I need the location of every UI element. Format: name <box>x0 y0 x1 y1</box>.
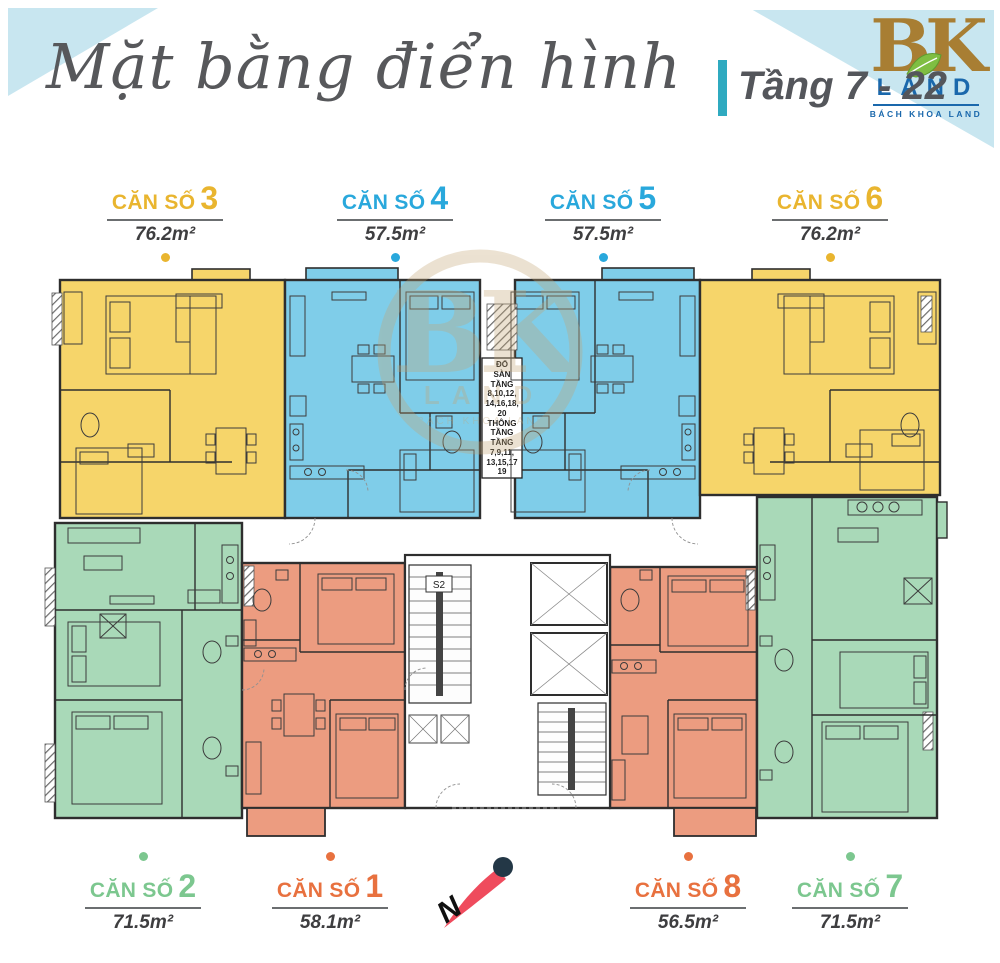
unit-area: 71.5m² <box>780 912 920 934</box>
compass-circle <box>493 857 513 877</box>
unit-name: CĂN SỐ <box>797 879 880 903</box>
unit-area: 57.5m² <box>325 224 465 246</box>
unit-color-dot <box>599 253 608 262</box>
unit-number: 4 <box>430 180 448 217</box>
unit-number: 6 <box>865 180 883 217</box>
floor-range-accent-bar <box>718 60 727 116</box>
unit-6-block <box>700 280 940 495</box>
unit-area: 76.2m² <box>760 224 900 246</box>
unit-name: CĂN SỐ <box>777 191 860 215</box>
unit-1-block <box>242 563 405 808</box>
unit-name: CĂN SỐ <box>112 191 195 215</box>
unit-area: 56.5m² <box>618 912 758 934</box>
logo-tagline: BÁCH KHOA LAND <box>858 109 994 119</box>
unit-label-5: CĂN SỐ5 57.5m² <box>533 180 673 262</box>
label-underline <box>772 219 888 221</box>
unit-color-dot <box>139 852 148 861</box>
unit-3-block <box>60 280 285 518</box>
watermark-tagline: BACH KHOA LAND <box>417 416 547 427</box>
unit-name: CĂN SỐ <box>90 879 173 903</box>
unit-label-3: CĂN SỐ3 76.2m² <box>95 180 235 262</box>
watermark-word: LAND <box>424 380 544 410</box>
unit-8-block <box>610 567 757 808</box>
label-underline <box>545 219 661 221</box>
label-underline <box>107 219 223 221</box>
unit-name: CĂN SỐ <box>277 879 360 903</box>
unit-number: 3 <box>200 180 218 217</box>
compass-north: N <box>431 857 513 930</box>
core-block: S2 <box>405 555 610 808</box>
label-underline <box>337 219 453 221</box>
floor-plan-page: Mặt bằng điển hình Tầng 7 - 22 BK LAND B… <box>0 0 1000 963</box>
stair-label: S2 <box>433 580 446 591</box>
unit-label-4: CĂN SỐ4 57.5m² <box>325 180 465 262</box>
unit-name: CĂN SỐ <box>550 191 633 215</box>
page-title: Mặt bằng điển hình <box>46 30 682 103</box>
unit-area: 57.5m² <box>533 224 673 246</box>
label-underline <box>630 907 746 909</box>
unit-name: CĂN SỐ <box>342 191 425 215</box>
unit-7-block <box>757 497 937 818</box>
stairwell-right <box>538 703 606 795</box>
balcony <box>247 808 325 836</box>
unit-area: 58.1m² <box>260 912 400 934</box>
balcony <box>674 808 756 836</box>
label-underline <box>85 907 201 909</box>
unit-area: 71.5m² <box>73 912 213 934</box>
unit-area: 76.2m² <box>95 224 235 246</box>
unit-color-dot <box>684 852 693 861</box>
unit-number: 8 <box>723 868 741 905</box>
unit-number: 1 <box>365 868 383 905</box>
unit-label-7: CĂN SỐ7 71.5m² <box>780 852 920 934</box>
unit-color-dot <box>326 852 335 861</box>
unit-color-dot <box>391 253 400 262</box>
floor-plan-svg: S2 <box>0 0 1000 963</box>
unit-number: 7 <box>885 868 903 905</box>
label-underline <box>272 907 388 909</box>
unit-color-dot <box>161 253 170 262</box>
unit-color-dot <box>846 852 855 861</box>
balcony <box>937 502 947 538</box>
floor-range-label: Tầng 7 - 22 <box>738 64 947 109</box>
unit-name: CĂN SỐ <box>635 879 718 903</box>
unit-number: 2 <box>178 868 196 905</box>
unit-label-2: CĂN SỐ2 71.5m² <box>73 852 213 934</box>
unit-label-1: CĂN SỐ1 58.1m² <box>260 852 400 934</box>
watermark-logo: BK LAND BACH KHOA LAND <box>384 256 580 448</box>
unit-label-8: CĂN SỐ8 56.5m² <box>618 852 758 934</box>
unit-number: 5 <box>638 180 656 217</box>
unit-color-dot <box>826 253 835 262</box>
label-underline <box>792 907 908 909</box>
unit-2-block <box>55 523 242 818</box>
unit-label-6: CĂN SỐ6 76.2m² <box>760 180 900 262</box>
